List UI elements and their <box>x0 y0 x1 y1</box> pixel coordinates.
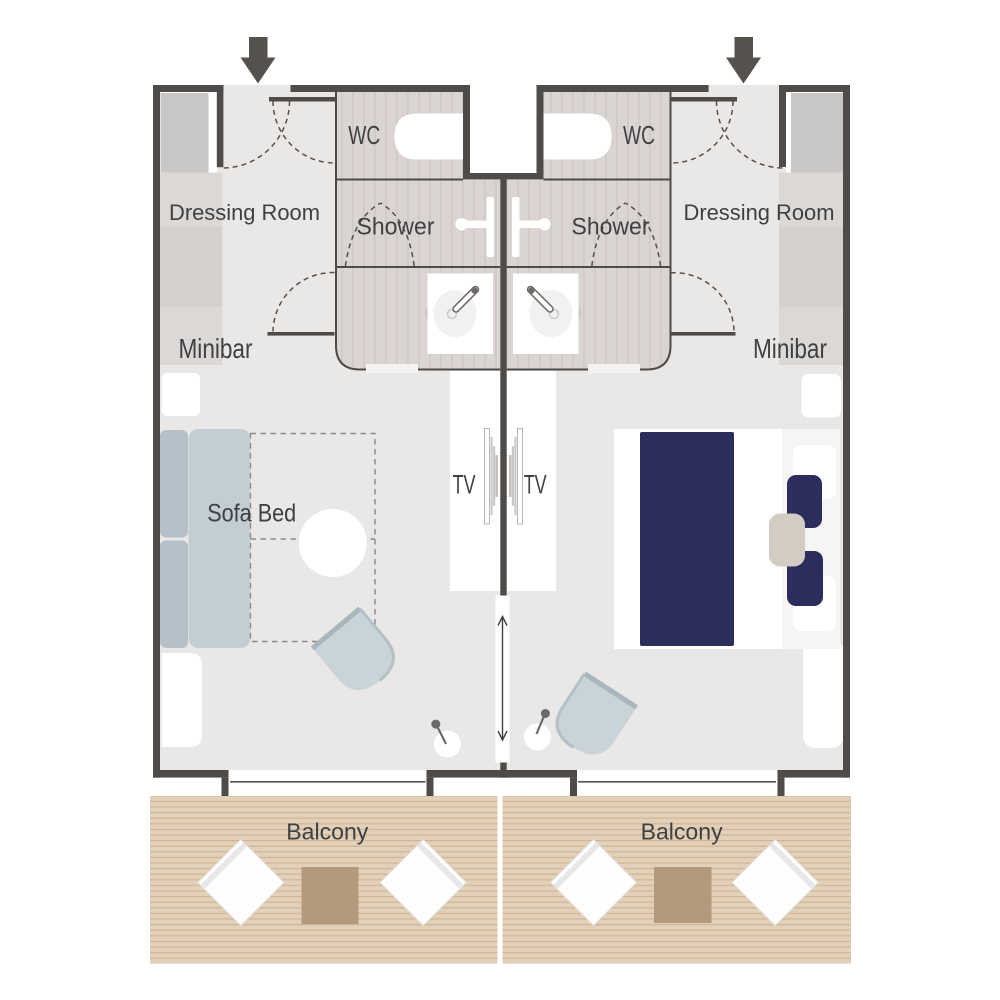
svg-text:TV: TV <box>524 470 547 500</box>
svg-text:TV: TV <box>453 470 476 500</box>
svg-text:Minibar: Minibar <box>753 333 827 364</box>
svg-text:Dressing Room: Dressing Room <box>684 200 835 225</box>
svg-text:Shower: Shower <box>572 214 650 241</box>
svg-text:WC: WC <box>348 120 380 150</box>
svg-text:WC: WC <box>623 120 655 150</box>
svg-text:Balcony: Balcony <box>641 819 723 845</box>
svg-text:Sofa Bed: Sofa Bed <box>207 500 296 528</box>
svg-text:Balcony: Balcony <box>286 819 368 845</box>
svg-text:Minibar: Minibar <box>179 333 253 364</box>
svg-text:Dressing Room: Dressing Room <box>169 200 320 225</box>
svg-text:Shower: Shower <box>357 214 435 241</box>
